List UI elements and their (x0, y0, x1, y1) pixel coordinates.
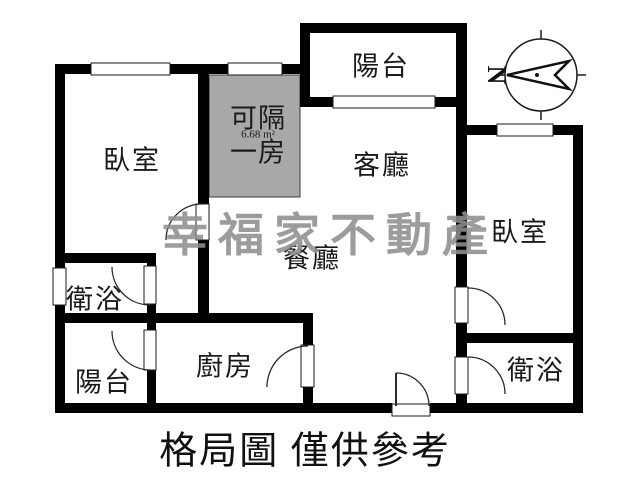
compass-north-label: N (481, 66, 511, 85)
wall-balcony-left (300, 23, 310, 107)
door-sill-bathroom-left (144, 266, 156, 304)
room-label-living-room: 客廳 (353, 144, 411, 183)
wall-west-mid-a (147, 253, 156, 267)
convertible-room-line2: 一房 (230, 139, 286, 167)
plan-caption: 格局圖 僅供參考 (159, 420, 451, 475)
floorplan-page: { "caption": "格局圖 僅供參考", "watermark": "幸… (0, 0, 640, 480)
wall-kitchen-right-b (303, 387, 313, 413)
wall-west-mid-c (147, 370, 156, 413)
wall-bath-left-top (55, 253, 156, 263)
wall-kitchen-right-a (303, 313, 313, 345)
room-label-bedroom-top-left: 臥室 (103, 139, 161, 178)
room-label-bathroom-left: 衛浴 (66, 278, 124, 317)
door-sill-bathroom-bottom-right (455, 357, 468, 394)
window-bathroom-left (53, 268, 66, 305)
window-convertible-room (228, 63, 282, 75)
door-sill-kitchen (301, 345, 314, 387)
compass-center-dot (535, 73, 539, 77)
wall-bottom-right (430, 403, 583, 413)
room-label-balcony-bottom-left: 陽台 (75, 361, 133, 400)
wall-right (573, 125, 583, 413)
window-bedroom-top-left (91, 63, 170, 75)
wall-spine-upper (198, 64, 209, 204)
wall-bottom-left (55, 403, 392, 413)
wall-center-vertical-lower (456, 394, 467, 413)
wall-balcony-top (300, 23, 467, 33)
door-sill-balcony-bottom-left (144, 330, 156, 370)
room-label-bathroom-bottom-right: 衛浴 (507, 349, 565, 388)
convertible-room-annotation: 可隔 6.68 m² 一房 (230, 105, 286, 168)
wall-bedroom-bath-divider (456, 333, 583, 343)
wall-balcony-right (456, 23, 467, 107)
door-arc-bathroom-bottom-right (468, 357, 505, 394)
wall-left (55, 64, 65, 413)
room-label-bedroom-right: 臥室 (491, 211, 549, 250)
room-label-kitchen: 廚房 (196, 345, 254, 384)
room-label-balcony-top: 陽台 (352, 45, 410, 84)
door-arc-main-entrance (396, 373, 429, 406)
window-bedroom-right (497, 124, 553, 136)
agency-watermark: 幸福家不動產 (162, 199, 498, 265)
door-arc-bedroom-right (468, 288, 505, 325)
window-balcony-top (333, 96, 435, 108)
door-sill-bedroom-right (455, 287, 468, 323)
door-sill-main-entrance (392, 404, 430, 416)
